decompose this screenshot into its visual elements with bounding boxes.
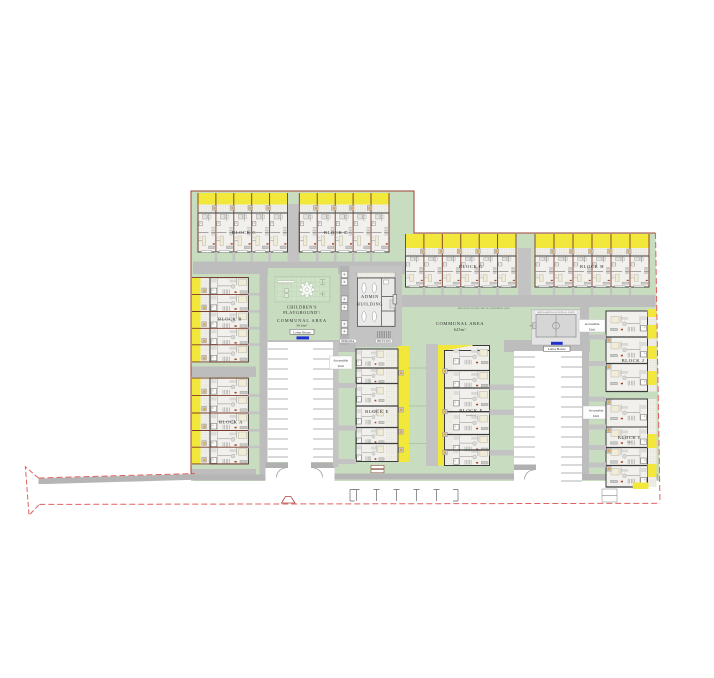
svg-text:MECHANICAL/ELECTRICAL EQUIPMEN: MECHANICAL/ELECTRICAL EQUIPMENT AREA	[458, 307, 511, 310]
svg-text:Unit: Unit	[338, 364, 344, 368]
svg-text:MINI BASKETBALL/FOOTBALL COURT: MINI BASKETBALL/FOOTBALL COURT	[537, 311, 575, 314]
svg-text:BLOCK I: BLOCK I	[618, 435, 640, 440]
svg-text:CHILDREN'S: CHILDREN'S	[287, 304, 317, 309]
svg-text:645m²: 645m²	[454, 328, 466, 332]
svg-text:Letter Boxes: Letter Boxes	[293, 330, 311, 334]
svg-text:BICYCLES: BICYCLES	[377, 340, 391, 343]
svg-text:(modified): (modified)	[466, 414, 476, 417]
svg-text:BLOCK D: BLOCK D	[324, 230, 348, 235]
svg-text:COMMUNAL AREA: COMMUNAL AREA	[277, 318, 327, 323]
svg-text:Accessible: Accessible	[333, 359, 348, 363]
svg-text:BLOCK J: BLOCK J	[622, 358, 645, 363]
svg-text:COMMUNAL AREA: COMMUNAL AREA	[436, 321, 484, 326]
svg-text:Accessible: Accessible	[585, 322, 600, 326]
svg-text:BLOCK F: BLOCK F	[459, 408, 482, 413]
svg-text:BLOCK G: BLOCK G	[459, 264, 483, 269]
svg-text:BLOCK A: BLOCK A	[219, 420, 243, 425]
svg-text:BLOCK C: BLOCK C	[232, 230, 256, 235]
svg-text:BLOCK B: BLOCK B	[218, 317, 242, 322]
svg-text:Letter Boxes: Letter Boxes	[548, 347, 566, 351]
svg-text:PLAYGROUND'/: PLAYGROUND'/	[283, 310, 321, 315]
svg-text:ADMIN: ADMIN	[361, 294, 379, 299]
svg-text:PERGOLA: PERGOLA	[342, 340, 355, 343]
svg-text:306m²: 306m²	[296, 324, 308, 328]
svg-text:Unit: Unit	[593, 414, 599, 418]
svg-text:BUILDING: BUILDING	[357, 302, 383, 307]
svg-text:BLOCK H: BLOCK H	[580, 264, 604, 269]
svg-text:BLOCK E: BLOCK E	[365, 409, 389, 414]
svg-text:TYP: TYP	[627, 441, 632, 444]
svg-text:Unit: Unit	[589, 327, 595, 331]
svg-text:Accessible: Accessible	[589, 409, 604, 413]
